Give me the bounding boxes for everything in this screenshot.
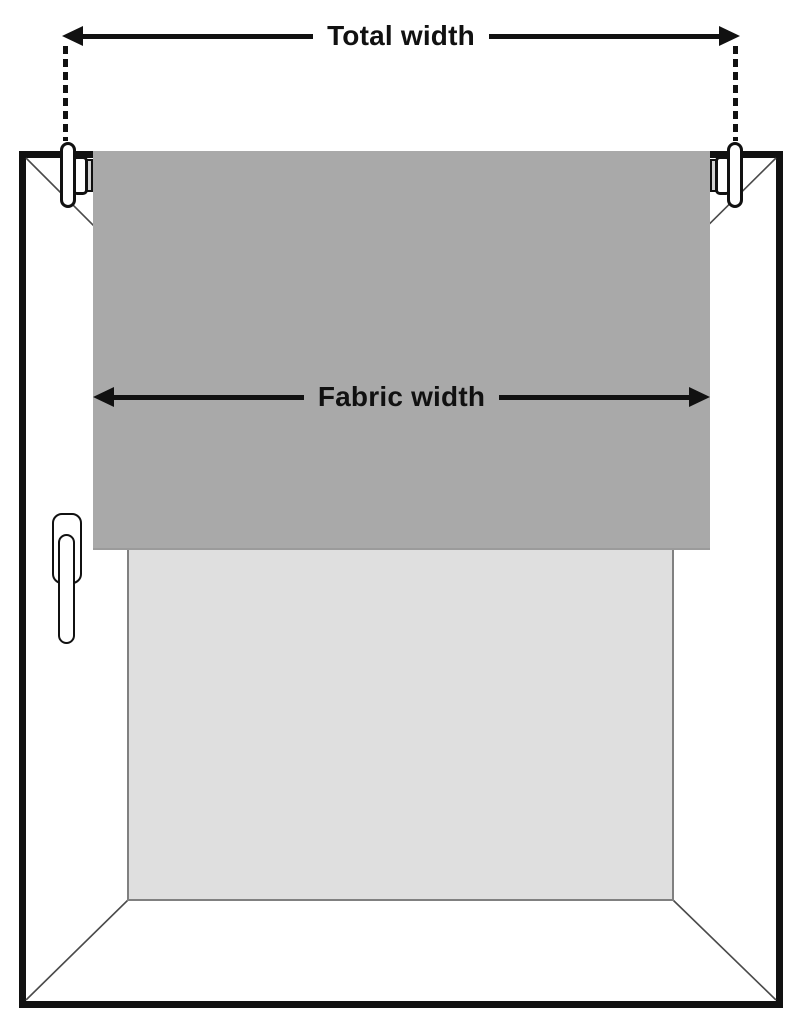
total-width-dimension: Total width (62, 24, 740, 48)
arrowhead-left-icon (93, 387, 114, 407)
fabric-width-dimension: Fabric width (93, 385, 710, 409)
blind-fabric-panel (93, 151, 710, 550)
dashed-extension-line-left (63, 46, 68, 141)
mounting-bracket-left (60, 142, 76, 208)
window-handle-lever (58, 534, 75, 644)
arrow-line (489, 34, 719, 39)
arrowhead-right-icon (719, 26, 740, 46)
arrowhead-right-icon (689, 387, 710, 407)
miter-line-bottom-right (673, 900, 776, 1000)
total-width-label: Total width (327, 24, 475, 48)
measurement-diagram: Total width Fabric width (0, 0, 799, 1024)
mounting-bracket-right (727, 142, 743, 208)
arrow-line (114, 395, 304, 400)
arrow-line (499, 395, 689, 400)
fabric-width-label: Fabric width (318, 385, 485, 409)
arrowhead-left-icon (62, 26, 83, 46)
arrow-line (83, 34, 313, 39)
dashed-extension-line-right (733, 46, 738, 141)
miter-line-bottom-left (26, 900, 128, 1000)
